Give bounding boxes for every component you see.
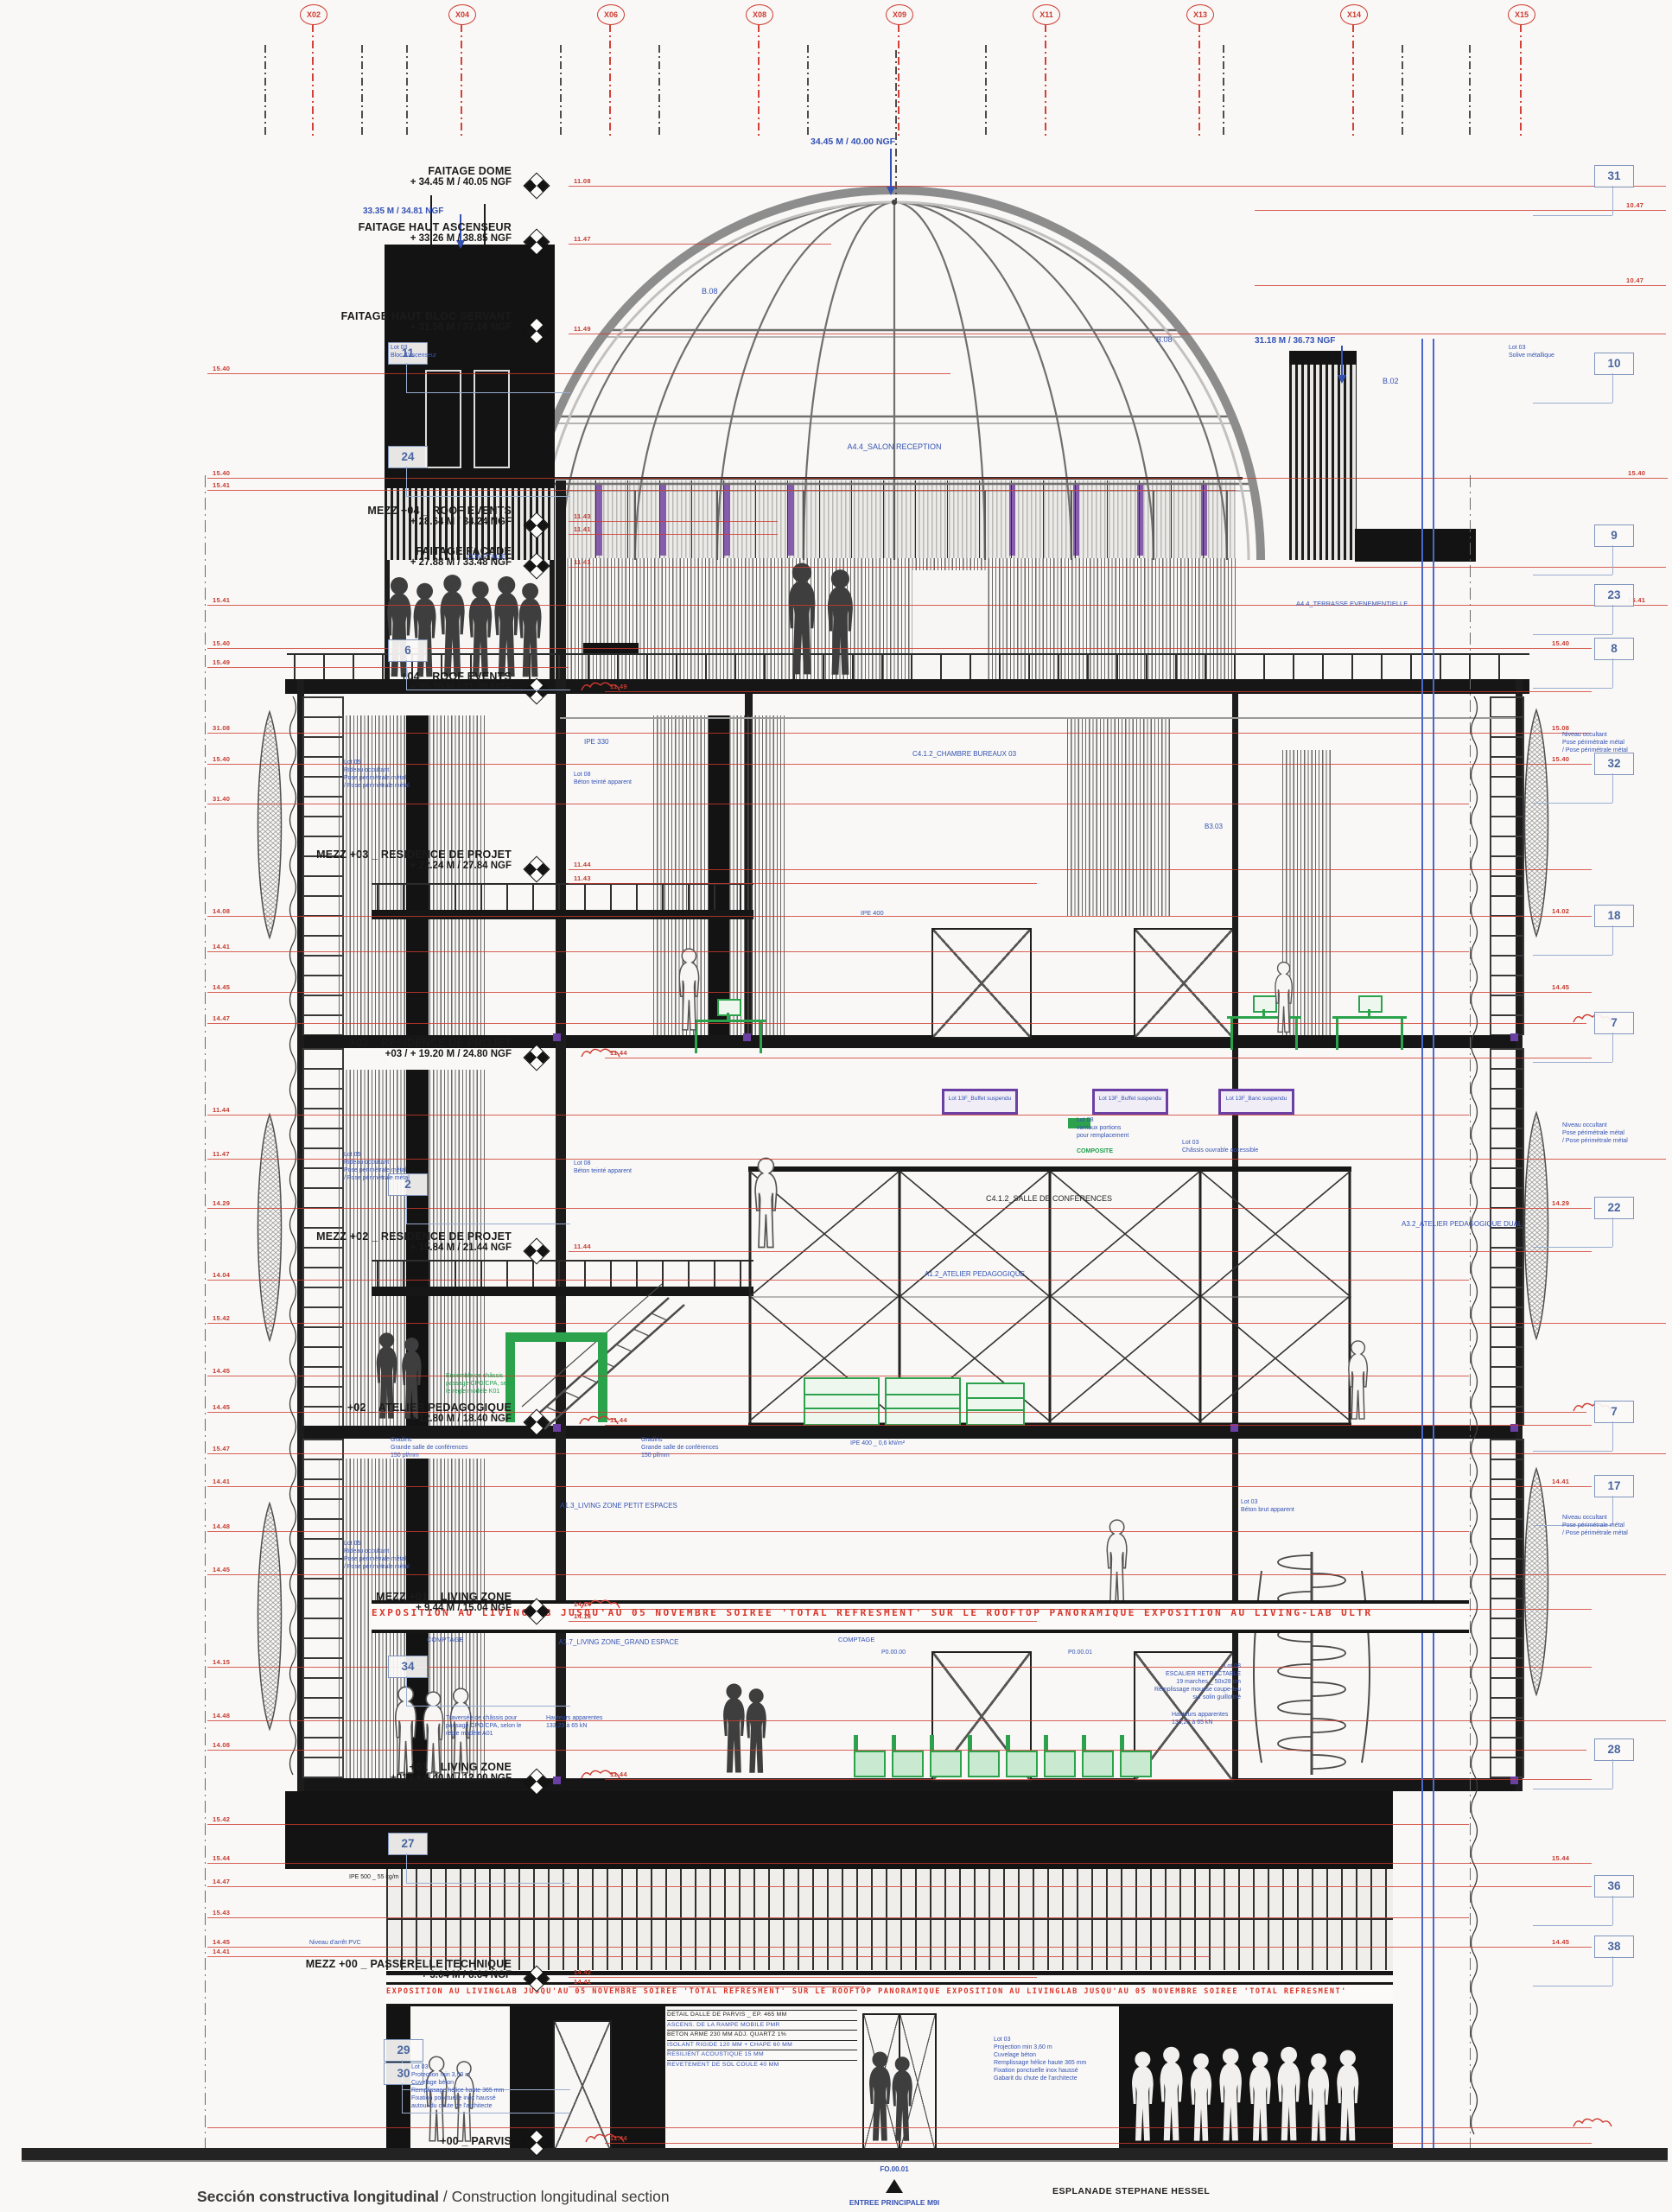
mezzanine-slab: [372, 910, 753, 919]
dimension-label: 14.04: [213, 1271, 230, 1279]
annotation-line: Remplissage hélice haute 365 mm: [411, 2087, 504, 2094]
esplanade-label: ESPLANADE STEPHANE HESSEL: [1052, 2186, 1210, 2196]
annotation-line: Grande salle de conférences: [391, 1444, 468, 1452]
leader-line: [1612, 1956, 1613, 1986]
leader-line: [1612, 545, 1613, 575]
structural-joint: [1510, 1033, 1518, 1041]
annotation: GradinsGrande salle de conférences150 pl…: [391, 1436, 468, 1459]
leader-line: [406, 690, 570, 690]
parapet-post: [646, 655, 648, 679]
annotation-line: Lot 08: [1154, 1662, 1241, 1670]
annotation-line: / Pose périmétrale métal: [344, 1174, 410, 1182]
annotation-line: Gabarit du chute de l'architecte: [994, 2075, 1086, 2082]
annotation-line: Lot 03: [1182, 1139, 1258, 1147]
railing-post: [455, 1261, 456, 1287]
revision-cloud-icon: [580, 1046, 621, 1058]
person-silhouette: [817, 565, 863, 679]
railing-post: [714, 1261, 715, 1287]
parapet-post: [588, 655, 589, 679]
leader-line: [1612, 658, 1613, 688]
annotation-line: Solive métallique: [1509, 352, 1554, 359]
person-silhouette: [1341, 1338, 1375, 1422]
level-name: MEZZ +03 _ RESIDENCE DE PROJET: [0, 849, 512, 861]
annotation-line: / Pose périmétrale métal: [344, 1563, 410, 1571]
annotation-line: Lot 05: [344, 1151, 410, 1159]
annotation: A1.7_LIVING ZONE_GRAND ESPACE: [480, 1638, 757, 1647]
annotation-line: Protection min 3,60 m: [411, 2071, 504, 2079]
dimension-line: [207, 373, 950, 374]
caption-bold: Sección constructiva longitudinal: [197, 2188, 439, 2205]
annotation-line: P0.00.00: [881, 1649, 906, 1656]
railing-post: [377, 884, 378, 910]
entrance-marker-icon: [886, 2179, 903, 2193]
level-elevation: + 25.70 M / 31.30 NGF: [0, 683, 512, 693]
railing-post: [377, 1261, 378, 1287]
level-name: FAITAGE DOME: [0, 165, 512, 177]
green-monitor-stand: [1262, 1009, 1265, 1016]
annotation-line: Lot 08: [574, 771, 632, 779]
annotation: C4.1.2_SALLE DE CONFERENCES: [911, 1194, 1187, 1205]
leader-line: [406, 1676, 407, 1706]
dimension-label: 14.45: [213, 1367, 230, 1375]
grid-bubble: X11: [1033, 4, 1060, 25]
facade-lens-section: [247, 1113, 292, 1342]
leader-line: [1533, 1925, 1612, 1926]
elevation-arrow-icon: [890, 149, 892, 187]
annotation-line: Hauteurs apparentes: [546, 1714, 602, 1722]
dimension-label: 14.41: [213, 943, 230, 950]
green-cabinet: [885, 1377, 961, 1426]
dimension-line: [207, 804, 1469, 804]
railing-post: [506, 884, 508, 910]
annotation: 34.45 M / 40.00 NGF: [811, 137, 895, 149]
grid-aux-line: [985, 45, 987, 135]
leader-line: [1533, 215, 1612, 216]
caption-separator: /: [439, 2188, 452, 2205]
annotation: GradinsGrande salle de conférences150 pl…: [641, 1436, 719, 1459]
green-monitor: [1358, 995, 1383, 1013]
annotation-line: B.02: [1383, 377, 1399, 387]
dimension-label: 15.40: [1628, 469, 1645, 477]
level-marker-icon: [523, 1044, 550, 1071]
annotation: A1.2_ATELIER PEDAGOGIQUE: [836, 1270, 1113, 1279]
grid-aux-line: [1402, 45, 1403, 135]
parapet-post: [1234, 655, 1236, 679]
facade-lens-section: [1514, 709, 1559, 938]
grid-line: [898, 24, 900, 137]
railing-post: [662, 884, 664, 910]
annotation-line: / Pose périmétrale métal: [1562, 1137, 1628, 1145]
annotation-line: IPE 500 _ 55 kg/m: [349, 1873, 399, 1881]
door-frame: [931, 928, 1032, 1039]
dimension-label: 15.41: [213, 596, 230, 604]
annotation-line: Niveau occultant: [1562, 1514, 1628, 1522]
green-monitor-stand: [1368, 1009, 1370, 1016]
annotation-line: A4.4_TERRASSE EVENEMENTIELLE: [1296, 600, 1408, 608]
door-frame: [1134, 928, 1234, 1039]
annotation: Niveau d'arrêt PVC: [309, 1939, 361, 1947]
annotation-line: / Pose périmétrale métal: [344, 782, 410, 790]
dimension-line: [569, 244, 831, 245]
level-name: MEZZ +00 _ PASSERELLE TECHNIQUE: [0, 1958, 512, 1970]
dimension-line: [605, 1058, 1592, 1058]
level-name: +03 _ RESIDENCE DE PROJET: [0, 1037, 512, 1049]
dimension-label: 11.49: [574, 325, 591, 333]
dimension-label: 14.41: [213, 1948, 230, 1955]
level-elevation: + 3.04 M / 8.64 NGF: [0, 1970, 512, 1980]
dimension-line: [207, 1886, 1592, 1887]
floor-slab-02: [298, 1426, 1518, 1439]
dimension-label: 11.44: [574, 861, 591, 868]
railing-post: [610, 884, 612, 910]
dimension-label: 14.45: [1552, 1938, 1569, 1946]
annotation-line: Pose périmétrale métal: [344, 1555, 410, 1563]
dimension-line: [207, 1280, 1469, 1281]
ref-box: 22: [1594, 1197, 1634, 1219]
annotation: Lot 03Solive métallique: [1509, 344, 1554, 359]
dimension-line: [569, 186, 1666, 187]
ref-box: 7: [1594, 1401, 1634, 1423]
dimension-label: 14.41: [1552, 1478, 1569, 1485]
grid-aux-line: [560, 45, 562, 135]
ref-box: 7: [1594, 1012, 1634, 1034]
dimension-label: 15.41: [213, 481, 230, 489]
suspended-buffet-label: Lot 13F_Banc suspendu: [1221, 1091, 1292, 1107]
level-label: FAITAGE DOME+ 34.45 M / 40.05 NGF: [0, 165, 512, 188]
person-silhouette: [1328, 2046, 1368, 2145]
annotation-line: B3.03: [1205, 823, 1223, 831]
annotation-line: Châssis ouvrable accessible: [1182, 1147, 1258, 1154]
level-elevation: + 22.24 M / 27.84 NGF: [0, 861, 512, 871]
green-monitor-stand: [727, 1013, 729, 1020]
annotation-line: B.08: [1156, 335, 1173, 346]
green-desk-top: [1332, 1016, 1407, 1019]
dimension-line: [207, 1486, 1592, 1487]
annotation-line: Béton brut apparent: [1241, 1506, 1294, 1514]
annotation-line: passage CPO/CPA, selon: [446, 1380, 515, 1388]
grid-aux-line: [658, 45, 660, 135]
dome-axis: [895, 50, 897, 200]
annotation-line: vantaux portions: [1077, 1124, 1128, 1132]
annotation-line: Rideau occultant: [344, 766, 410, 774]
annotation: Ensemble de châssispassage CPO/CPA, selo…: [446, 1372, 515, 1395]
structural-joint: [743, 1033, 751, 1041]
dimension-label: 14.13: [574, 1612, 591, 1620]
dimension-label: 14.29: [213, 1199, 230, 1207]
annotation: Lot 08vantaux portionspour remplacement: [1077, 1116, 1128, 1140]
annotation: IPE 500 _ 55 kg/m: [349, 1873, 399, 1881]
revision-cloud-icon: [1572, 2116, 1613, 2128]
railing-post: [740, 884, 741, 910]
annotation-line: 31.18 M / 36.73 NGF: [1255, 335, 1335, 346]
esplanade-ground: [22, 2148, 1668, 2160]
railing-post: [740, 1261, 741, 1287]
leader-line: [406, 1853, 407, 1883]
annotation: 33.35 M / 34.81 NGF: [363, 206, 443, 217]
annotation-line: Gradins: [391, 1436, 468, 1444]
wall-opening: [912, 570, 987, 679]
leader-line: [1533, 1986, 1612, 1986]
grid-line: [1045, 24, 1046, 137]
annotation-line: Pose périmétrale métal: [1562, 1522, 1628, 1529]
leader-line: [1612, 773, 1613, 803]
grid-aux-line: [361, 45, 363, 135]
grid-aux-line: [807, 45, 809, 135]
annotation-line: Rideau occultant: [344, 1548, 410, 1555]
ref-box: 38: [1594, 1935, 1634, 1958]
level-elevation: +01 / + 6.40 M / 12.00 NGF: [0, 1773, 512, 1783]
annotation-line: Pose périmétrale métal: [1562, 1129, 1628, 1137]
leader-line: [406, 1194, 407, 1224]
annotation: Niveau occultantPose périmétrale métal/ …: [1562, 1514, 1628, 1537]
dimension-chain: [205, 475, 206, 2148]
level-label: MEZZ +01 _ LIVING ZONE+ 9.44 M / 15.04 N…: [0, 1591, 512, 1613]
annotation-line: A3.2_ATELIER PEDAGOGIQUE DUAL: [1402, 1220, 1522, 1229]
annotation: Niveau occultantPose périmétrale métal/ …: [1562, 1122, 1628, 1145]
annotation: A3.2_ATELIER PEDAGOGIQUE DUAL: [1402, 1220, 1522, 1229]
leader-line: [1533, 955, 1612, 956]
leader-line: [1533, 688, 1612, 689]
leader-line: [1533, 1789, 1612, 1789]
annotation: Lot 05Rideau occultantPose périmétrale m…: [344, 1540, 410, 1571]
hatched-wall: [560, 558, 1236, 681]
person-silhouette: [884, 2053, 920, 2145]
grid-aux-line: [264, 45, 266, 135]
core-wall: [556, 480, 566, 1778]
level-elevation: + 33.26 M / 38.85 NGF: [0, 233, 512, 244]
annotation-line: ESCALIER RETRACTABLE: [1154, 1670, 1241, 1678]
dimension-label: 14.47: [213, 1014, 230, 1022]
dimension-label: 11.44: [213, 1106, 230, 1114]
annotation-line: Niveau occultant: [1562, 1122, 1628, 1129]
annotation: A1.3_LIVING ZONE PETIT ESPACES: [480, 1502, 757, 1510]
annotation-line: 34.45 M / 40.00 NGF: [811, 137, 895, 149]
parapet-post: [940, 655, 942, 679]
annotation: Niveau occultantPose périmétrale métal/ …: [1562, 731, 1628, 754]
level-label: MEZZ +00 _ PASSERELLE TECHNIQUE+ 3.04 M …: [0, 1958, 512, 1980]
dimension-label: 15.40: [213, 755, 230, 763]
leader-line: [1612, 605, 1613, 634]
parapet-post: [1028, 655, 1030, 679]
dimension-label: 15.44: [213, 1854, 230, 1862]
dimension-label: 11.43: [574, 512, 591, 520]
ceiling-line: [560, 717, 1516, 719]
level-name: FAITAGE FACADE: [0, 545, 512, 557]
annotation-line: Grande salle de conférences: [641, 1444, 719, 1452]
annotation: Hauteurs apparentes133,23 à 65 kN: [1172, 1711, 1228, 1726]
railing-post: [403, 1261, 404, 1287]
revision-cloud-icon: [580, 680, 621, 692]
dimension-label: 15.42: [213, 1314, 230, 1322]
leader-line: [1612, 1421, 1613, 1451]
spec-row: ISOLANT RIGIDE 120 MM + CHAPE 60 MM: [667, 2040, 857, 2050]
dimension-label: 10.47: [1626, 201, 1643, 209]
suspended-buffet-bar: Lot 13F_Buffet suspendu: [942, 1089, 1018, 1115]
revision-cloud-icon: [578, 1414, 620, 1426]
annotation-line: IPE 400 _ 0,6 kN/m²: [850, 1440, 905, 1447]
leader-line: [1612, 1033, 1613, 1062]
level-name: +01 _ LIVING ZONE: [0, 1761, 512, 1773]
dimension-label: 15.47: [213, 1445, 230, 1452]
railing-post: [480, 1261, 482, 1287]
dimension-label: 14.45: [213, 983, 230, 991]
leader-line: [1533, 1247, 1612, 1248]
green-cabinet: [804, 1377, 880, 1426]
elevation-arrow-head-icon: [1338, 375, 1346, 384]
level-elevation: + 27.88 M / 33.48 NGF: [0, 557, 512, 568]
leader-line: [406, 496, 570, 497]
spec-row: REVETEMENT DE SOL COULE 40 MM: [667, 2060, 857, 2070]
railing-post: [636, 884, 638, 910]
annotation-line: Lot 03: [1241, 1498, 1294, 1506]
annotation-line: Lot 03: [391, 344, 436, 352]
leader-line: [1612, 925, 1613, 955]
leader-line: [1533, 575, 1612, 575]
level-name: FAITAGE HAUT BLOC SERVANT: [0, 310, 512, 322]
annotation-line: IPE 400: [861, 909, 884, 918]
dimension-label: 15.40: [1552, 639, 1569, 647]
spec-row: BETON ARME 230 MM ADJ. QUARTZ 1%: [667, 2030, 857, 2040]
annotation: IPE 330: [584, 738, 608, 747]
level-label: +00 _ PARVIS: [0, 2135, 512, 2147]
annotation: COMPTAGE: [838, 1636, 874, 1644]
annotation: Hauteurs apparentes133,23 à 65 kN: [546, 1714, 602, 1730]
dimension-line: [1255, 285, 1666, 286]
parapet-post: [970, 655, 971, 679]
leader-line: [406, 363, 407, 392]
dimension-label: 11.08: [574, 177, 591, 185]
level-elevation: + 15.84 M / 21.44 NGF: [0, 1243, 512, 1253]
leader-line: [1533, 1062, 1612, 1063]
annotation-line: Fixation ponctuelle inox haussé: [994, 2067, 1086, 2075]
railing-post: [480, 884, 482, 910]
railing-post: [532, 884, 534, 910]
parapet-post: [911, 655, 912, 679]
ref-box: 36: [1594, 1875, 1634, 1897]
dimension-label: 15.44: [1552, 1854, 1569, 1862]
grid-bubble: X09: [886, 4, 913, 25]
annotation-line: Pose périmétrale métal: [1562, 739, 1628, 747]
dimension-line: [207, 1023, 1586, 1024]
roof-block: [1355, 529, 1476, 562]
annotation-line: Ensemble de châssis: [446, 1372, 515, 1380]
level-name: MEZZ +04 _ ROOF EVENTS: [0, 505, 512, 517]
leader-line: [406, 1706, 570, 1707]
dimension-label: 15.40: [1552, 755, 1569, 763]
parapet-post: [1440, 655, 1441, 679]
annotation: Lot 03Châssis ouvrable accessible: [1182, 1139, 1258, 1154]
leader-line: [406, 392, 570, 393]
annotation: Lot 08Béton teinté apparent: [574, 771, 632, 786]
tower-door: [425, 370, 461, 468]
leader-line: [402, 2083, 403, 2113]
hatched-partition: [1067, 717, 1171, 916]
annotation-line: passage CPO/CPA, selon le: [446, 1722, 521, 1730]
annotation: C4.1.2_CHAMBRE BUREAUX 03: [912, 750, 1016, 759]
tower-door: [474, 370, 510, 468]
level-label: +03 _ RESIDENCE DE PROJET+03 / + 19.20 M…: [0, 1037, 512, 1059]
leader-line: [406, 467, 407, 496]
parapet-post: [1087, 655, 1089, 679]
dimension-line: [207, 1376, 1469, 1376]
dimension-line: [207, 1917, 1469, 1918]
parapet-post: [676, 655, 677, 679]
dimension-line: [207, 2127, 1592, 2128]
railing-post: [429, 1261, 430, 1287]
facade-lens-section: [1514, 1467, 1559, 1696]
level-label: FAITAGE FACADE+ 27.88 M / 33.48 NGF: [0, 545, 512, 568]
annotation-line: COMPOSITE: [1077, 1147, 1113, 1155]
dimension-label: 15.42: [213, 1815, 230, 1823]
dimension-line: [569, 521, 778, 522]
level-elevation: + 28.64 M / 34.24 NGF: [0, 517, 512, 527]
dimension-line: [207, 1863, 1592, 1864]
dimension-label: 31.40: [213, 795, 230, 803]
annotation-line: Béton teinté apparent: [574, 1167, 632, 1175]
person-silhouette: [671, 945, 707, 1033]
dimension-line: [605, 1425, 1592, 1426]
green-chair-seat: [1120, 1751, 1152, 1777]
level-elevation: + 34.45 M / 40.05 NGF: [0, 177, 512, 188]
parapet-post: [1263, 655, 1265, 679]
green-chair-seat: [1044, 1751, 1076, 1777]
ref-box: 23: [1594, 584, 1634, 607]
annotation: B.02: [1383, 377, 1399, 387]
railing-post: [584, 884, 586, 910]
railing-post: [403, 884, 404, 910]
annotation-line: 133,23 à 65 kN: [1172, 1719, 1228, 1726]
dimension-line: [569, 1621, 1037, 1622]
annotation-line: Fixation ponctuelle inox haussé: [411, 2094, 504, 2102]
green-monitor: [717, 999, 741, 1016]
annotation-line: 133,23 à 65 kN: [546, 1722, 602, 1730]
annotation-line: Cuvelage béton: [411, 2079, 504, 2087]
parapet-post: [1293, 655, 1294, 679]
parapet-post: [1205, 655, 1206, 679]
service-tower-cap: [1289, 351, 1357, 365]
ref-box: 32: [1594, 753, 1634, 775]
parapet-post: [1322, 655, 1324, 679]
annotation-line: Cuvelage béton: [994, 2051, 1086, 2059]
annotation: Lot 08ESCALIER RETRACTABLE19 marches _ 5…: [1154, 1662, 1241, 1701]
dimension-line: [605, 2143, 1592, 2144]
leader-line: [1612, 186, 1613, 215]
dimension-line: [569, 1986, 864, 1987]
annotation: Lot 03Bloc d'ascenseur: [391, 344, 436, 359]
annotation: B3.03: [1205, 823, 1223, 831]
green-chair-seat: [968, 1751, 1000, 1777]
green-cabinet: [966, 1382, 1025, 1426]
annotation: B.08: [702, 287, 718, 297]
annotation: COMPTAGE: [427, 1636, 463, 1644]
annotation-line: COMPTAGE: [467, 553, 505, 562]
grid-line: [312, 24, 314, 137]
dimension-line: [207, 1159, 1666, 1160]
person-silhouette: [510, 579, 550, 681]
dimension-line: [605, 691, 1592, 692]
annotation-line: P0.00.01: [1068, 1649, 1092, 1656]
annotation-line: Lot 03: [1509, 344, 1554, 352]
dimension-label: 14.48: [213, 1712, 230, 1719]
dimension-label: 14.41: [213, 1478, 230, 1485]
annotation-line: Traversée de châssis pour: [446, 1714, 521, 1722]
annotation: IPE 400: [861, 909, 884, 918]
annotation-line: Lot 08: [574, 1160, 632, 1167]
grid-bubble: X06: [597, 4, 625, 25]
spec-row: RESILIENT ACOUSTIQUE 15 MM: [667, 2050, 857, 2060]
annotation-line: 19 marches _ 50x28 cm: [1154, 1678, 1241, 1686]
parapet-post: [1146, 655, 1148, 679]
